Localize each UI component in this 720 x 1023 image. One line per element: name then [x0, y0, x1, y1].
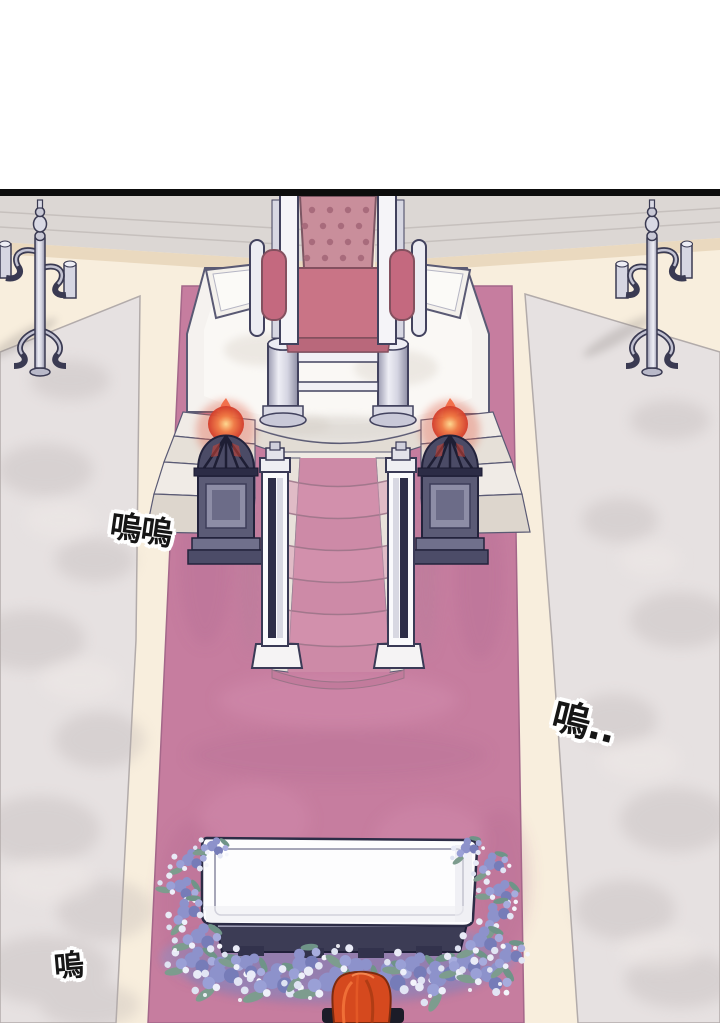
throne-hall-illustration: [0, 0, 720, 1023]
panel-top-border: [0, 189, 720, 196]
brazier-right: [412, 398, 488, 564]
mourner-hair: [332, 972, 390, 1023]
throne-armrest-left: [262, 250, 286, 320]
brazier-left: [188, 398, 264, 564]
comic-panel: 嗚嗚 嗚.. 嗚: [0, 0, 720, 1023]
page-top-margin: [0, 0, 720, 189]
sfx-sob-bottom: 嗚: [53, 951, 85, 983]
throne-seat: [286, 268, 390, 338]
throne-armrest-right: [390, 250, 414, 320]
sfx-sob-left: 嗚嗚: [108, 510, 174, 550]
